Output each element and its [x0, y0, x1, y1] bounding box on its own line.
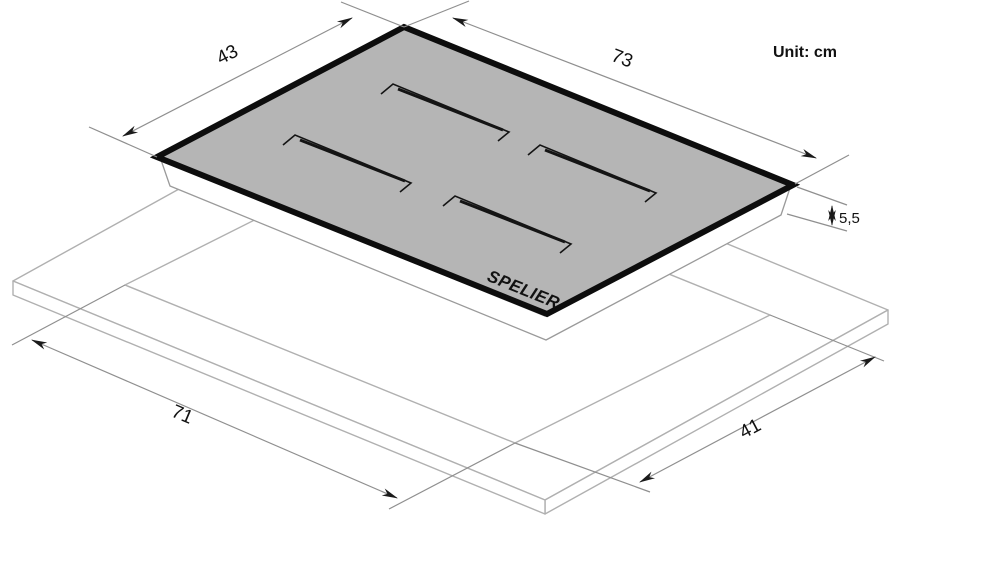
- extension-line: [341, 2, 404, 27]
- technical-drawing-page: SPELIER GERMANY 43 73 5,5 71 41 Unit: cm: [0, 0, 1000, 581]
- extension-line: [787, 214, 847, 231]
- extension-line: [795, 155, 849, 184]
- dimension-label-hob-width: 43: [213, 41, 241, 69]
- extension-line: [797, 187, 847, 205]
- cooktop-installation-diagram: SPELIER GERMANY 43 73 5,5 71 41 Unit: cm: [0, 0, 1000, 581]
- dimension-hob-height: [787, 187, 847, 231]
- dimension-label-cutout-width: 41: [736, 415, 765, 443]
- extension-line: [89, 127, 157, 157]
- unit-label: Unit: cm: [773, 44, 837, 61]
- dimension-label-hob-height: 5,5: [839, 210, 860, 227]
- dimension-label-hob-length: 73: [608, 45, 635, 72]
- dimension-label-cutout-length: 71: [168, 401, 196, 429]
- extension-line: [404, 1, 469, 27]
